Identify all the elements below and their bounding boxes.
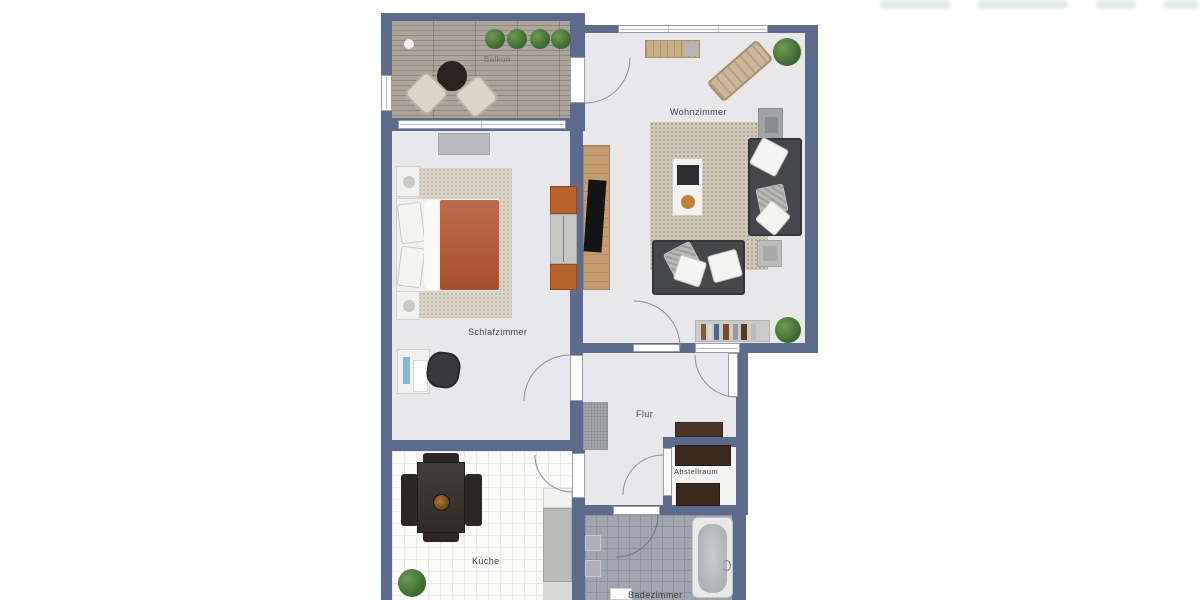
bed-duvet xyxy=(440,200,499,290)
balcony-plant-2 xyxy=(507,29,527,49)
room-label-wohnzimmer: Wohnzimmer xyxy=(670,107,727,117)
bathroom-door xyxy=(613,506,660,515)
wall-bedroom-kitchen xyxy=(381,440,577,451)
bedroom-door xyxy=(570,355,583,401)
bathroom-fixture-2 xyxy=(585,560,601,577)
side-table xyxy=(757,240,782,267)
storage-shelf-top xyxy=(675,445,731,466)
entrance-sidelight xyxy=(695,343,740,353)
floorplan-image: Balkon Wohnzimmer xyxy=(0,0,1200,600)
watermark xyxy=(880,0,1198,12)
desk xyxy=(397,349,430,394)
coffee-table xyxy=(672,158,703,216)
bedroom-sideboard xyxy=(438,133,490,155)
wall-kitchen-left xyxy=(381,440,392,600)
wall-bedroom-left xyxy=(381,131,392,451)
kitchen-counter-end xyxy=(543,582,572,600)
kitchen-plant xyxy=(398,569,426,597)
entrance-door xyxy=(728,353,738,397)
kitchen-counter-top xyxy=(543,488,572,508)
hall-cabinet xyxy=(583,402,608,450)
balcony-plant-3 xyxy=(530,29,550,49)
apartment-plan: Balkon Wohnzimmer xyxy=(380,0,820,600)
watermark-blob xyxy=(1164,0,1198,9)
wall-bathroom-top xyxy=(583,505,748,515)
wall-livingroom-right xyxy=(805,25,818,353)
bed-pillow xyxy=(397,202,426,245)
watermark-blob xyxy=(1096,0,1136,9)
room-label-schlafzimmer: Schlafzimmer xyxy=(468,327,527,337)
livingroom-plant-bottom xyxy=(775,317,801,343)
room-label-abstellraum: Abstellraum xyxy=(674,467,718,476)
watermark-blob xyxy=(978,0,1068,9)
livingroom-plant-top xyxy=(773,38,801,66)
wall-cabinet xyxy=(758,108,783,140)
bedroom-balcony-window xyxy=(398,120,566,129)
balcony-light xyxy=(404,39,414,49)
room-label-badezimmer: Badezimmer xyxy=(628,590,683,600)
livingroom-door xyxy=(633,344,680,352)
fruit-bowl xyxy=(433,494,450,511)
bathtub-faucet xyxy=(722,560,731,571)
storage-shelf-bottom xyxy=(676,483,720,506)
sideboard-tray xyxy=(685,42,698,56)
kitchen-counter xyxy=(543,508,572,582)
kitchen-chair-left xyxy=(401,474,418,526)
nightstand-top xyxy=(396,166,420,197)
livingroom-top-window xyxy=(618,25,768,33)
wardrobe xyxy=(550,186,577,290)
kitchen-chair-right xyxy=(465,474,482,526)
kitchen-door xyxy=(572,453,585,498)
balcony-side-window xyxy=(381,75,392,111)
room-label-kueche: Küche xyxy=(472,556,500,566)
bookshelf xyxy=(695,320,770,342)
balcony-door xyxy=(570,57,585,103)
bed-pillow xyxy=(397,246,426,289)
wall-bathroom-right xyxy=(732,510,746,600)
wall-balcony-top xyxy=(381,13,585,21)
storage-door xyxy=(663,448,672,496)
hall-sideboard xyxy=(675,422,723,437)
room-label-flur: Flur xyxy=(636,409,653,419)
balcony-plant-4 xyxy=(551,29,571,49)
watermark-blob xyxy=(880,0,950,9)
bathtub xyxy=(692,517,733,598)
balcony-plant-1 xyxy=(485,29,505,49)
bathroom-fixture-1 xyxy=(585,535,601,551)
room-label-balkon: Balkon xyxy=(484,55,511,64)
nightstand-bottom xyxy=(396,290,420,320)
wall-balcony-left xyxy=(381,13,392,131)
